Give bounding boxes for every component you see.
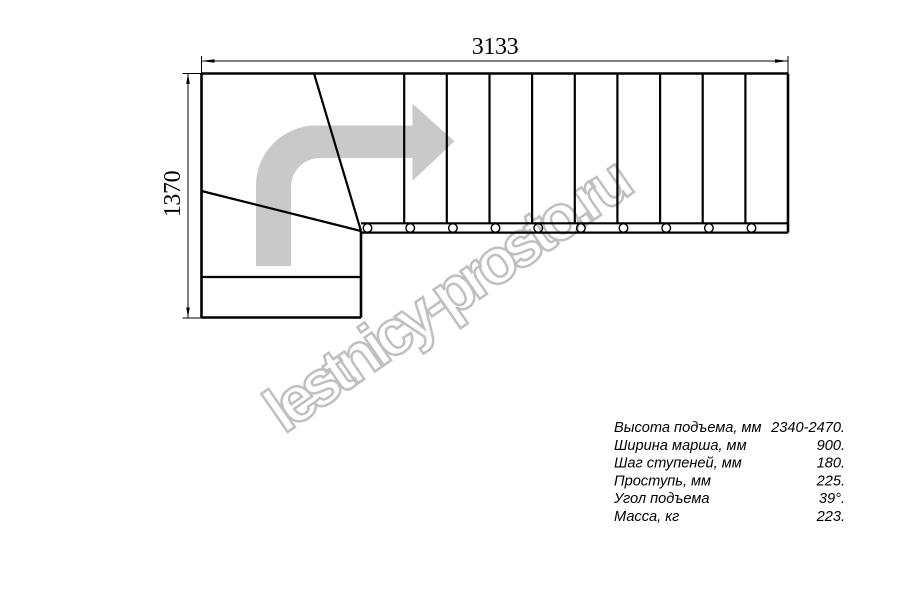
svg-text:3133: 3133 (472, 34, 519, 60)
svg-text:2340-2470.: 2340-2470. (770, 420, 845, 436)
svg-text:180.: 180. (817, 456, 845, 472)
svg-text:1370: 1370 (160, 170, 186, 217)
svg-text:Ширина марша, мм: Ширина марша, мм (614, 438, 747, 454)
svg-text:225.: 225. (816, 473, 845, 489)
svg-text:Проступь, мм: Проступь, мм (614, 473, 711, 489)
svg-text:Масса, кг: Масса, кг (614, 509, 679, 525)
svg-text:Угол подъема: Угол подъема (613, 491, 709, 507)
svg-text:39°.: 39°. (819, 491, 845, 507)
svg-text:223.: 223. (816, 509, 845, 525)
svg-text:Шаг ступеней, мм: Шаг ступеней, мм (614, 456, 742, 472)
svg-text:Высота подъема, мм: Высота подъема, мм (614, 420, 762, 436)
svg-text:900.: 900. (817, 438, 845, 454)
